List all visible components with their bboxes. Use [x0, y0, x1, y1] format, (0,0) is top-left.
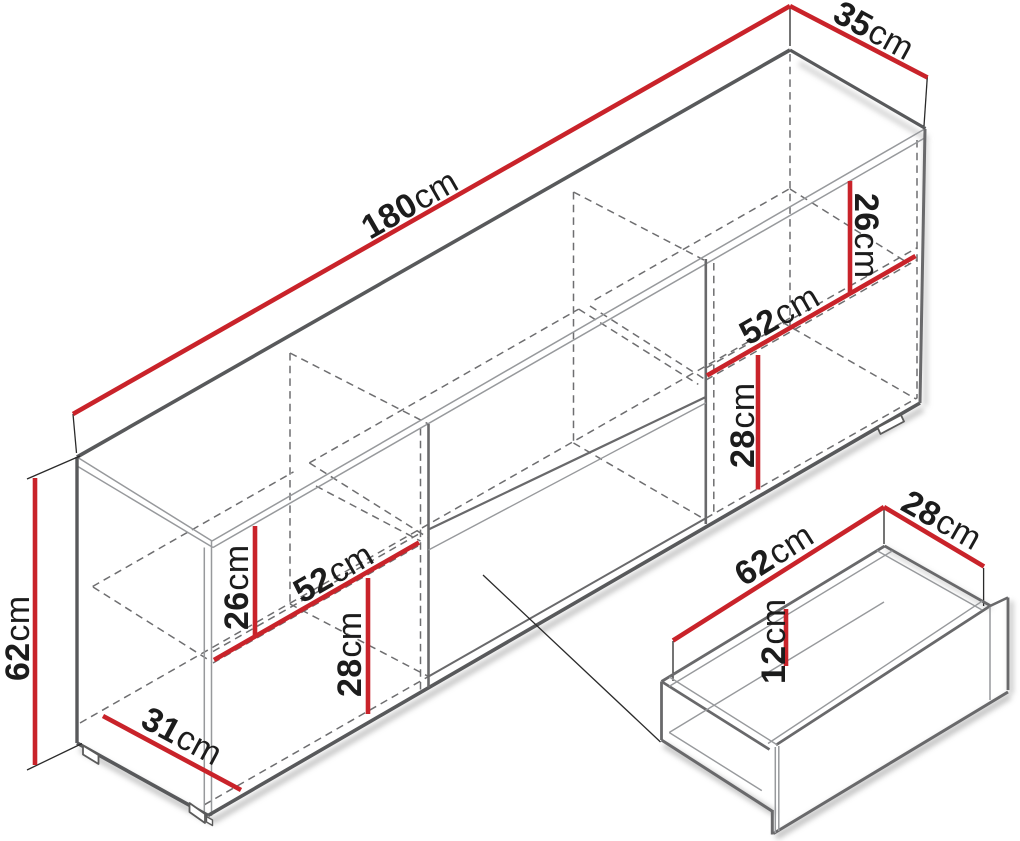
svg-text:26cm: 26cm: [847, 193, 885, 278]
svg-text:28cm: 28cm: [331, 612, 369, 697]
svg-text:62cm: 62cm: [0, 596, 37, 681]
svg-text:28cm: 28cm: [724, 383, 762, 468]
svg-text:12cm: 12cm: [755, 599, 793, 684]
svg-text:26cm: 26cm: [218, 545, 256, 630]
